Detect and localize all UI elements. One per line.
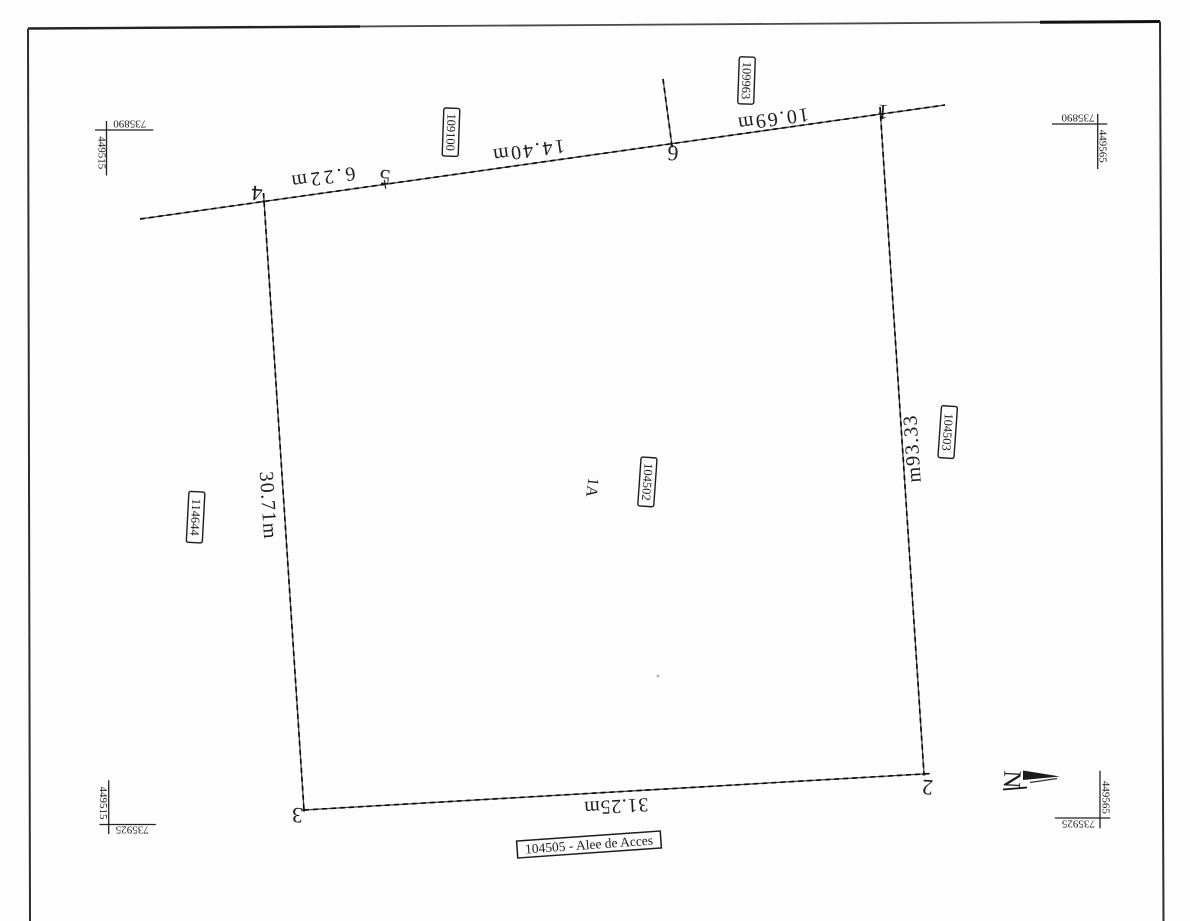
svg-text:m93.33: m93.33 (899, 414, 925, 484)
svg-text:1A: 1A (582, 477, 601, 499)
svg-text:449565: 449565 (1096, 130, 1108, 164)
svg-text:6: 6 (667, 141, 680, 167)
svg-text:104502: 104502 (639, 463, 656, 501)
svg-text:735890: 735890 (1061, 112, 1095, 124)
svg-text:31.25m: 31.25m (583, 793, 649, 819)
svg-text:735925: 735925 (1061, 817, 1095, 829)
svg-text:5: 5 (379, 165, 392, 191)
svg-text:449515: 449515 (95, 136, 107, 170)
svg-text:3: 3 (291, 803, 304, 829)
svg-text:114644: 114644 (187, 498, 203, 536)
svg-text:30.71m: 30.71m (255, 471, 281, 541)
svg-text:2: 2 (921, 775, 934, 801)
svg-text:1: 1 (877, 100, 890, 126)
svg-text:6.22m: 6.22m (287, 162, 357, 193)
svg-text:4: 4 (251, 181, 264, 207)
svg-text:10.69m: 10.69m (735, 103, 811, 135)
svg-text:N: N (998, 770, 1026, 789)
svg-text:735890: 735890 (113, 118, 147, 130)
svg-text:109100: 109100 (443, 113, 458, 151)
svg-text:109963: 109963 (739, 62, 754, 100)
svg-text:735925: 735925 (115, 824, 149, 836)
svg-text:449515: 449515 (97, 787, 109, 821)
svg-text:104503: 104503 (939, 413, 956, 451)
svg-text:14.40m: 14.40m (490, 134, 567, 166)
svg-text:449565: 449565 (1099, 781, 1111, 815)
